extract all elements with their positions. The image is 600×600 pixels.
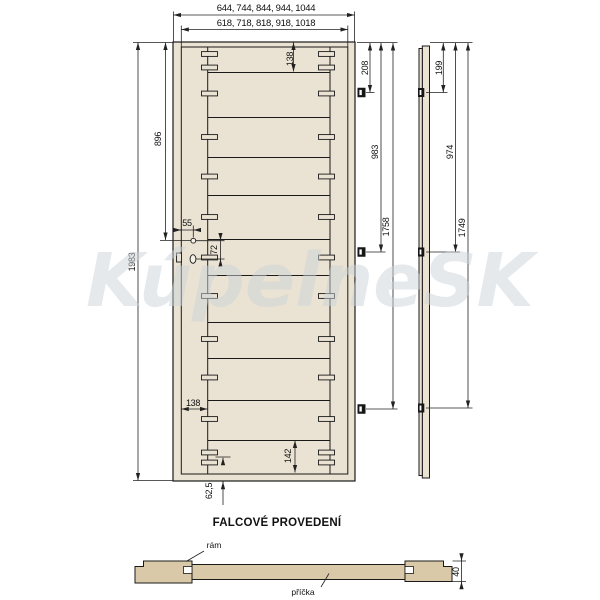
drawing-svg [0,0,600,600]
dim-label-1758: 1758 [381,218,391,237]
tenon-mark [202,294,218,299]
tenon-mark [319,417,335,422]
side-view-body [422,46,429,478]
door-leaf-outline [173,42,355,481]
dim-label-inner-widths: 618, 718, 818, 918, 1018 [217,18,315,29]
tenon-mark [202,52,218,57]
tenon-mark [202,450,218,455]
front-hinges [358,88,366,414]
section-crossbar [192,565,408,580]
tenon-mark [202,215,218,220]
tenon-mark [319,375,335,380]
tenon-mark [202,337,218,342]
technical-drawing-canvas: 644, 744, 844, 944, 1044 618, 718, 818, … [0,0,600,600]
tenon-mark [319,255,335,260]
hinge-side-slot [420,406,422,411]
hinge-front-slot [359,90,361,95]
tenon-mark [202,174,218,179]
dim-label-72: 72 [209,245,219,254]
tenon-mark [202,135,218,140]
dim-label-208: 208 [360,60,370,74]
tenon-mark [319,91,335,96]
section-view [135,551,452,587]
dim-label-40: 40 [451,567,461,576]
tenon-mark [319,135,335,140]
hinge-side-slot [420,90,422,95]
tenon-mark [202,91,218,96]
dim-label-1749: 1749 [457,218,467,237]
tenon-mark [319,294,335,299]
tenon-mark [319,337,335,342]
tenon-mark [319,52,335,57]
dim-label-55: 55 [182,218,191,228]
side-view-door [418,46,430,478]
tenon-mark [202,375,218,380]
tenon-mark [202,65,218,70]
tenon-mark [319,460,335,465]
dim-label-974: 974 [445,144,455,158]
dim-label-62-5: 62,5 [204,482,214,498]
lock-cylinder-hole [190,255,196,264]
frame-label: rám [207,540,222,550]
hinge-side-slot [420,250,422,255]
handle-hole [191,238,196,243]
tenon-mark [319,65,335,70]
dim-label-983: 983 [370,145,380,159]
section-title: FALCOVÉ PROVEDENÍ [213,517,342,529]
crossbar-label: příčka [291,587,314,597]
dim-label-896: 896 [153,132,163,146]
tenon-mark [319,174,335,179]
lock-faceplate [177,253,182,262]
dim-label-1983: 1983 [127,253,137,272]
dim-label-outer-widths: 644, 744, 844, 944, 1044 [217,3,315,14]
front-view-door [173,42,366,481]
tenon-mark [319,215,335,220]
dim-label-199: 199 [434,61,444,75]
section-joint-notch-left [184,567,193,574]
dim-label-138-top: 138 [285,52,295,66]
dim-label-138-bottom: 138 [186,398,200,408]
tenon-mark [202,460,218,465]
section-joint-notch-right [405,567,414,574]
dim-label-142: 142 [283,449,293,463]
hinge-front-slot [359,406,361,411]
tenon-mark [319,450,335,455]
hinge-front-slot [359,249,361,254]
tenon-mark [202,417,218,422]
